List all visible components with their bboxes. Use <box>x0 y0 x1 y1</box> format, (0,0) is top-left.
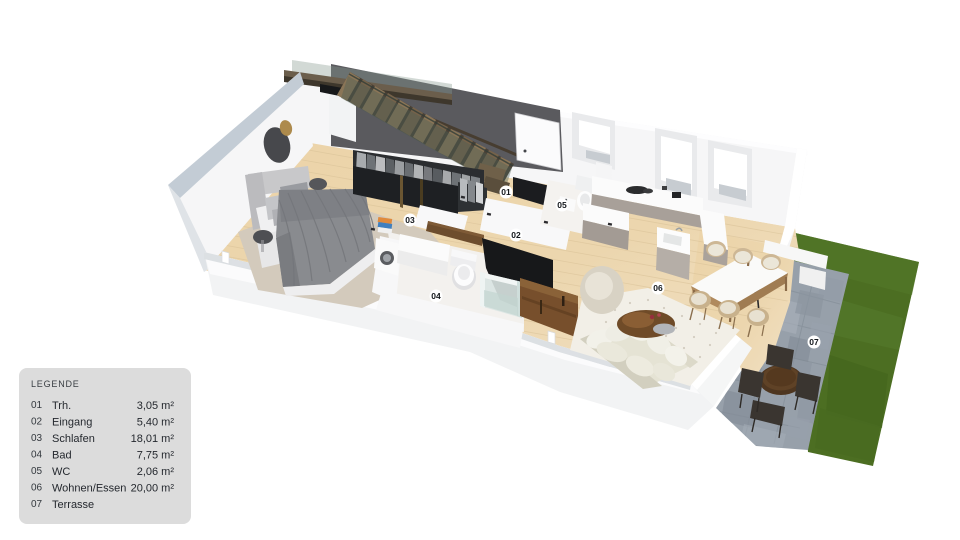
svg-text:LEGENDE: LEGENDE <box>31 379 80 389</box>
svg-text:02: 02 <box>511 230 521 240</box>
svg-text:20,00 m²: 20,00 m² <box>131 483 175 495</box>
svg-text:Eingang: Eingang <box>52 417 92 429</box>
svg-text:04: 04 <box>31 450 43 461</box>
svg-text:3,05 m²: 3,05 m² <box>137 400 175 412</box>
svg-text:Bad: Bad <box>52 450 72 462</box>
svg-text:Schlafen: Schlafen <box>52 433 95 445</box>
svg-text:2,06 m²: 2,06 m² <box>137 466 175 478</box>
svg-text:06: 06 <box>31 483 43 494</box>
svg-text:03: 03 <box>31 433 43 444</box>
svg-text:06: 06 <box>653 283 663 293</box>
svg-text:01: 01 <box>31 400 43 411</box>
svg-text:04: 04 <box>431 291 441 301</box>
svg-text:03: 03 <box>405 215 415 225</box>
svg-text:05: 05 <box>557 200 567 210</box>
svg-text:01: 01 <box>501 187 511 197</box>
svg-text:Trh.: Trh. <box>52 400 71 412</box>
svg-text:18,01 m²: 18,01 m² <box>131 433 175 445</box>
svg-text:07: 07 <box>31 499 43 510</box>
svg-text:Wohnen/Essen: Wohnen/Essen <box>52 483 126 495</box>
svg-text:07: 07 <box>809 337 819 347</box>
svg-text:WC: WC <box>52 466 70 478</box>
svg-text:7,75 m²: 7,75 m² <box>137 450 175 462</box>
svg-text:5,40 m²: 5,40 m² <box>137 417 175 429</box>
svg-text:05: 05 <box>31 466 43 477</box>
svg-text:Terrasse: Terrasse <box>52 499 94 511</box>
svg-text:02: 02 <box>31 417 43 428</box>
